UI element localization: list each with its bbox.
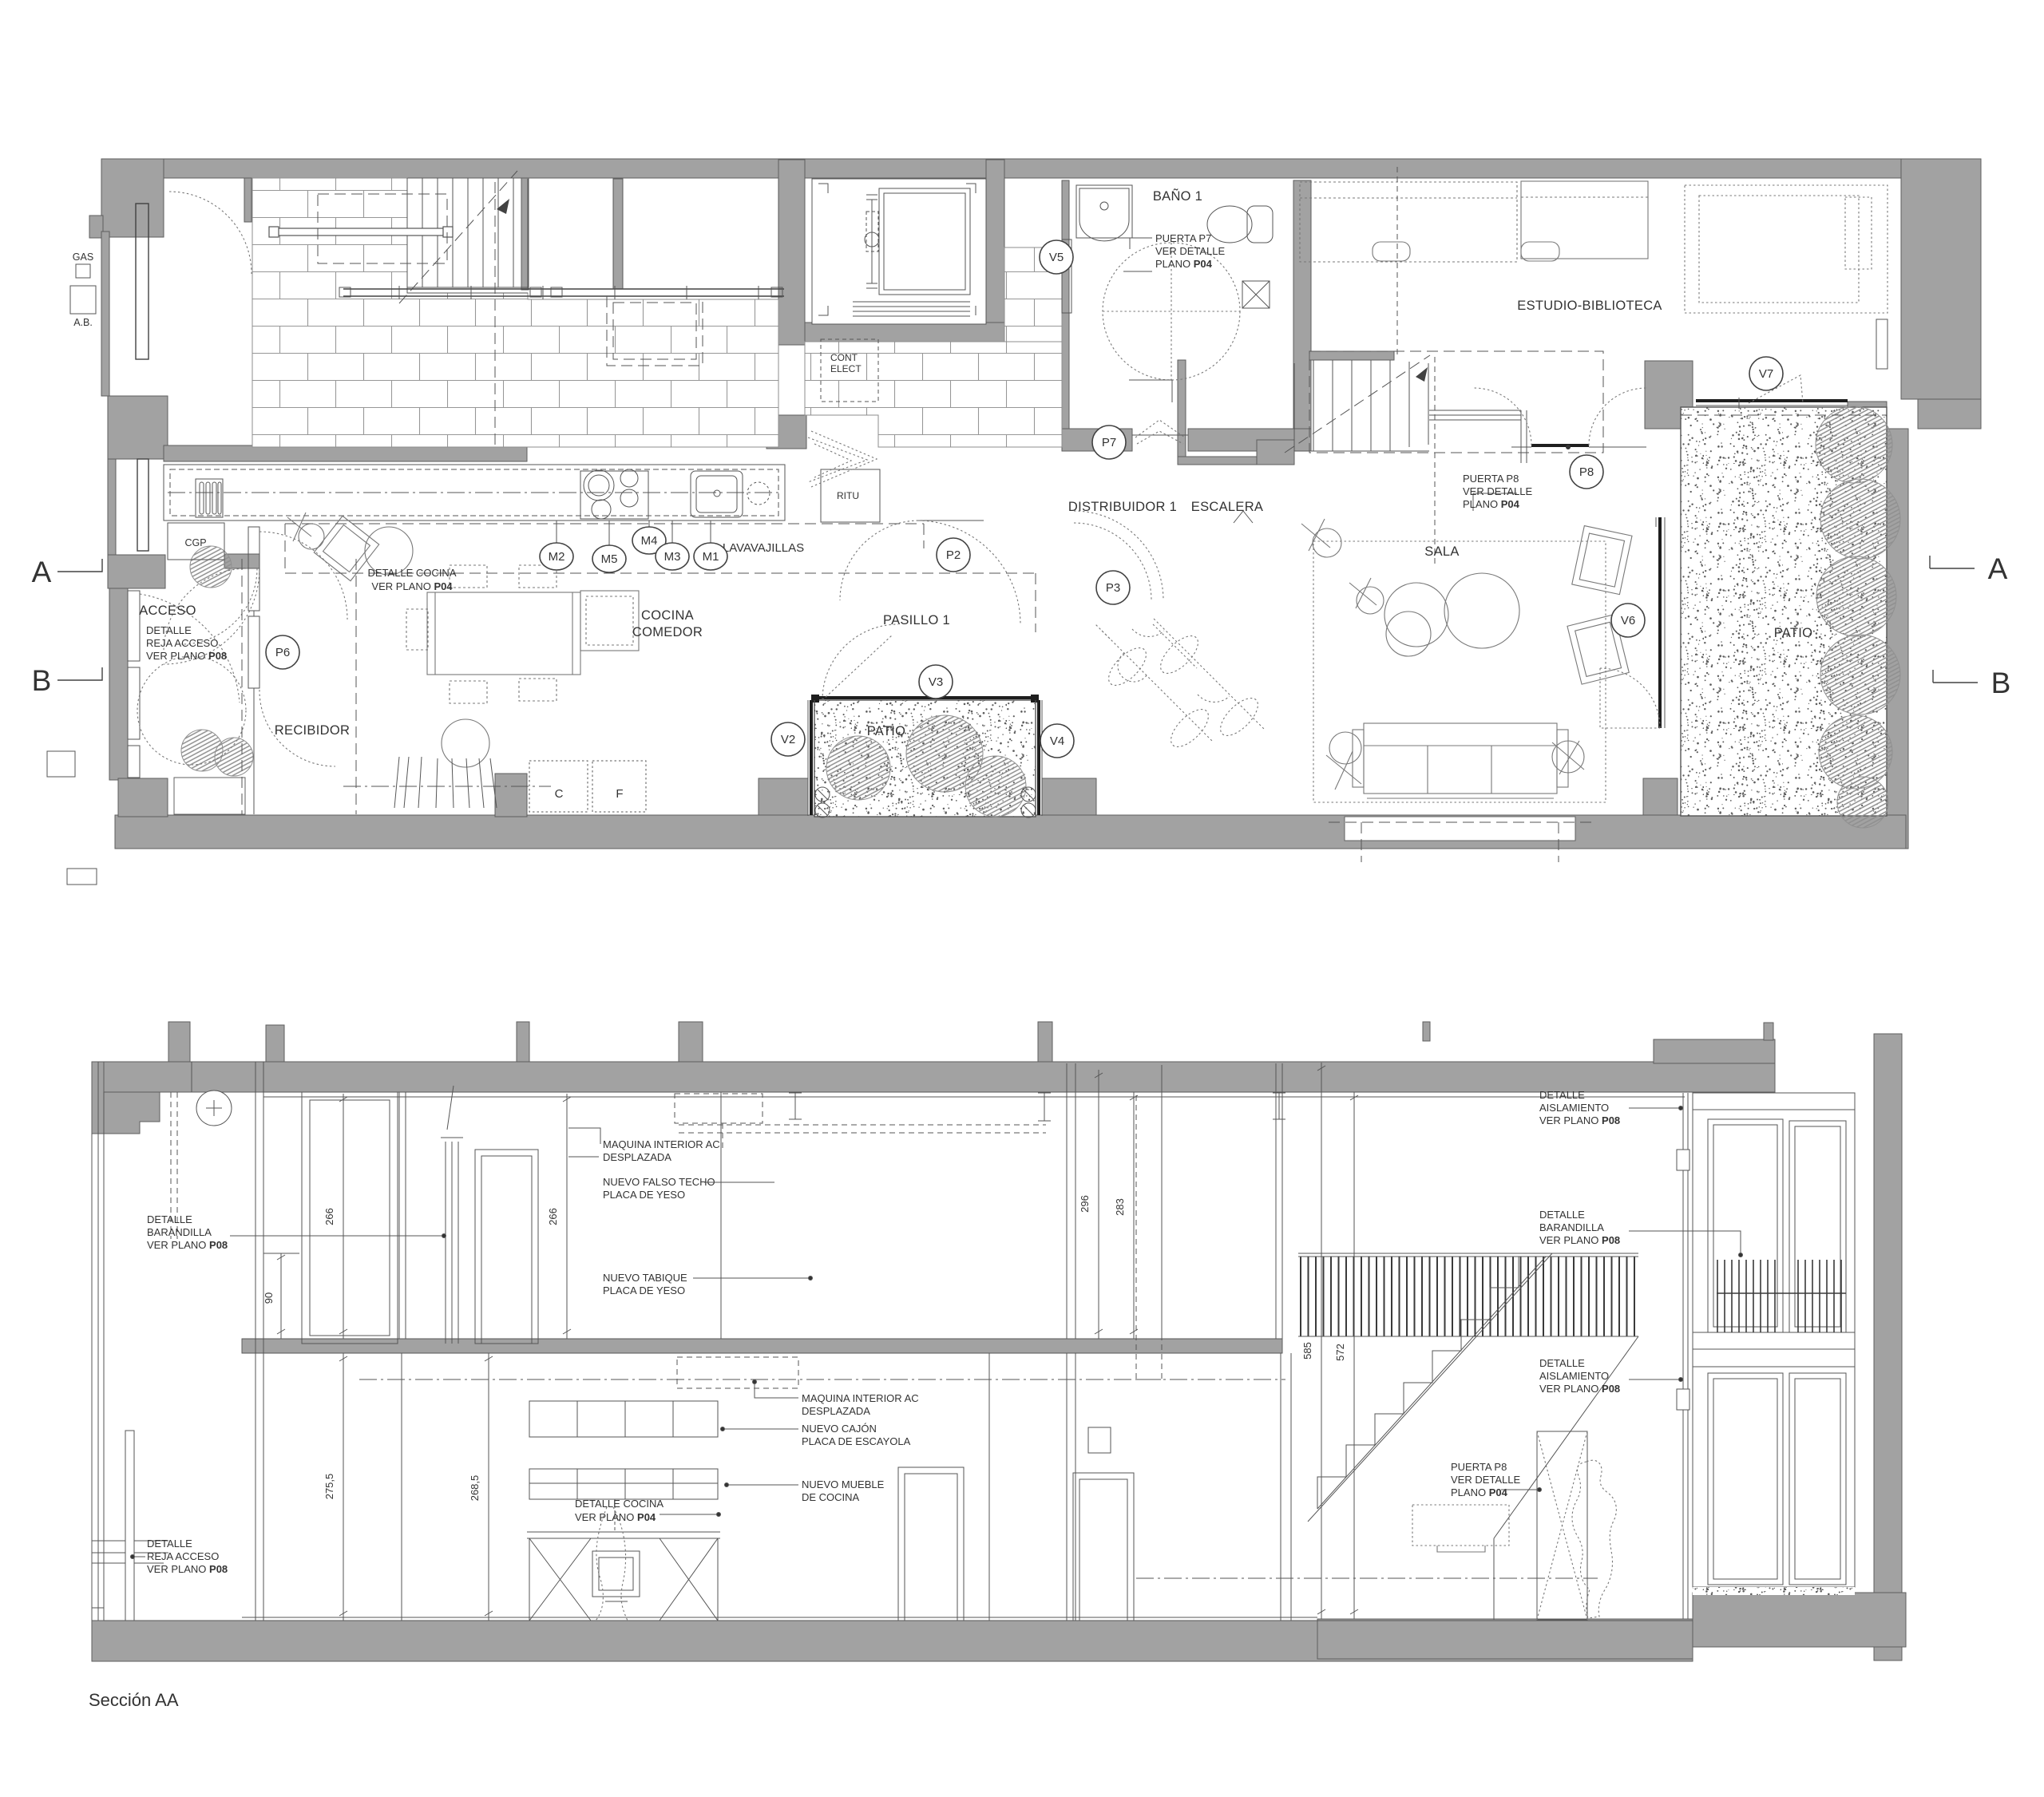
svg-text:DETALLE: DETALLE — [1539, 1209, 1585, 1221]
svg-text:ESTUDIO-BIBLIOTECA: ESTUDIO-BIBLIOTECA — [1517, 299, 1662, 313]
svg-text:DETALLE: DETALLE — [146, 624, 192, 636]
svg-text:MAQUINA INTERIOR AC: MAQUINA INTERIOR AC — [603, 1138, 720, 1150]
svg-text:ESCALERA: ESCALERA — [1191, 500, 1263, 514]
svg-text:REJA ACCESO: REJA ACCESO — [147, 1550, 219, 1562]
svg-text:C: C — [555, 787, 564, 801]
svg-text:COCINA: COCINA — [641, 608, 694, 623]
svg-text:PLACA DE ESCAYOLA: PLACA DE ESCAYOLA — [802, 1435, 911, 1447]
svg-text:PLANO P04: PLANO P04 — [1451, 1486, 1508, 1498]
svg-text:DETALLE COCINA: DETALLE COCINA — [367, 567, 456, 579]
svg-text:V6: V6 — [1621, 614, 1635, 627]
svg-text:P8: P8 — [1579, 465, 1594, 479]
svg-text:M3: M3 — [664, 550, 681, 564]
svg-text:CGP: CGP — [184, 537, 206, 548]
svg-text:PUERTA P8: PUERTA P8 — [1451, 1461, 1507, 1473]
svg-text:RECIBIDOR: RECIBIDOR — [275, 723, 350, 738]
svg-text:GAS: GAS — [73, 251, 93, 263]
svg-text:VER PLANO P08: VER PLANO P08 — [146, 650, 227, 662]
svg-text:PLANO P04: PLANO P04 — [1155, 258, 1213, 270]
svg-text:VER PLANO P04: VER PLANO P04 — [575, 1511, 656, 1523]
svg-text:B: B — [32, 664, 52, 697]
svg-text:V3: V3 — [929, 675, 943, 689]
svg-text:PLACA DE YESO: PLACA DE YESO — [603, 1189, 685, 1201]
svg-text:M5: M5 — [601, 552, 618, 566]
svg-text:MAQUINA INTERIOR AC: MAQUINA INTERIOR AC — [802, 1392, 919, 1404]
svg-text:DETALLE COCINA: DETALLE COCINA — [575, 1498, 664, 1510]
svg-text:A: A — [32, 556, 52, 588]
svg-text:P6: P6 — [275, 646, 290, 659]
svg-text:PATIO: PATIO — [1774, 626, 1813, 640]
svg-text:V2: V2 — [781, 733, 795, 746]
svg-text:ELECT: ELECT — [830, 363, 862, 374]
svg-text:DESPLAZADA: DESPLAZADA — [603, 1151, 671, 1163]
svg-text:VER PLANO P08: VER PLANO P08 — [147, 1563, 228, 1575]
svg-text:PASILLO 1: PASILLO 1 — [883, 613, 950, 627]
svg-text:PLACA DE YESO: PLACA DE YESO — [603, 1284, 685, 1296]
svg-text:PATIO: PATIO — [867, 724, 906, 738]
svg-text:VER PLANO P08: VER PLANO P08 — [1539, 1114, 1620, 1126]
svg-text:P3: P3 — [1106, 581, 1120, 595]
svg-text:PUERTA P8: PUERTA P8 — [1463, 473, 1519, 485]
svg-text:M2: M2 — [549, 550, 565, 564]
svg-text:CONT: CONT — [830, 352, 858, 363]
svg-text:V5: V5 — [1049, 251, 1064, 264]
svg-text:NUEVO CAJÓN: NUEVO CAJÓN — [802, 1423, 877, 1435]
svg-text:VER DETALLE: VER DETALLE — [1155, 245, 1226, 257]
svg-text:PLANO P04: PLANO P04 — [1463, 498, 1520, 510]
svg-text:A: A — [1988, 552, 2008, 585]
svg-text:AISLAMIENTO: AISLAMIENTO — [1539, 1370, 1609, 1382]
svg-text:283: 283 — [1114, 1198, 1126, 1216]
svg-text:DE COCINA: DE COCINA — [802, 1491, 860, 1503]
svg-text:DETALLE: DETALLE — [147, 1538, 192, 1550]
svg-text:VER PLANO P08: VER PLANO P08 — [147, 1239, 228, 1251]
svg-text:585: 585 — [1301, 1342, 1313, 1360]
svg-text:572: 572 — [1334, 1344, 1346, 1361]
svg-text:NUEVO MUEBLE: NUEVO MUEBLE — [802, 1478, 885, 1490]
svg-text:BARANDILLA: BARANDILLA — [1539, 1221, 1604, 1233]
svg-text:VER PLANO P08: VER PLANO P08 — [1539, 1234, 1620, 1246]
svg-text:Sección AA: Sección AA — [89, 1690, 179, 1710]
svg-text:LAVAVAJILLAS: LAVAVAJILLAS — [723, 541, 804, 555]
svg-text:PUERTA P7: PUERTA P7 — [1155, 232, 1211, 244]
svg-text:275,5: 275,5 — [323, 1474, 335, 1500]
svg-text:M1: M1 — [703, 550, 719, 564]
svg-text:VER DETALLE: VER DETALLE — [1451, 1474, 1521, 1486]
svg-text:NUEVO TABIQUE: NUEVO TABIQUE — [603, 1272, 687, 1284]
svg-text:AISLAMIENTO: AISLAMIENTO — [1539, 1102, 1609, 1114]
svg-text:NUEVO FALSO TECHO: NUEVO FALSO TECHO — [603, 1176, 715, 1188]
svg-text:VER DETALLE: VER DETALLE — [1463, 485, 1533, 497]
svg-text:P7: P7 — [1102, 436, 1116, 449]
svg-text:DESPLAZADA: DESPLAZADA — [802, 1405, 870, 1417]
svg-text:VER PLANO P08: VER PLANO P08 — [1539, 1383, 1620, 1395]
svg-text:DETALLE: DETALLE — [1539, 1357, 1585, 1369]
svg-text:90: 90 — [263, 1292, 275, 1304]
svg-text:V4: V4 — [1050, 734, 1064, 748]
svg-text:COMEDOR: COMEDOR — [632, 625, 703, 639]
svg-text:268,5: 268,5 — [469, 1475, 481, 1502]
svg-text:P2: P2 — [946, 548, 961, 562]
svg-text:BARANDILLA: BARANDILLA — [147, 1226, 212, 1238]
svg-text:BAÑO 1: BAÑO 1 — [1153, 188, 1202, 204]
svg-text:SALA: SALA — [1424, 544, 1459, 559]
svg-text:F: F — [616, 787, 623, 801]
svg-text:M4: M4 — [641, 534, 658, 548]
svg-text:DISTRIBUIDOR 1: DISTRIBUIDOR 1 — [1068, 500, 1177, 514]
svg-text:B: B — [1991, 667, 2011, 699]
svg-text:DETALLE: DETALLE — [1539, 1089, 1585, 1101]
svg-text:266: 266 — [547, 1208, 559, 1225]
svg-text:296: 296 — [1079, 1195, 1091, 1213]
svg-text:266: 266 — [323, 1208, 335, 1225]
svg-text:VER PLANO P04: VER PLANO P04 — [371, 580, 453, 592]
svg-text:V7: V7 — [1759, 367, 1773, 381]
svg-text:REJA ACCESO: REJA ACCESO — [146, 637, 218, 649]
svg-text:A.B.: A.B. — [73, 317, 93, 328]
svg-text:DETALLE: DETALLE — [147, 1213, 192, 1225]
svg-text:RITU: RITU — [837, 490, 859, 501]
svg-text:ACCESO: ACCESO — [139, 604, 196, 618]
